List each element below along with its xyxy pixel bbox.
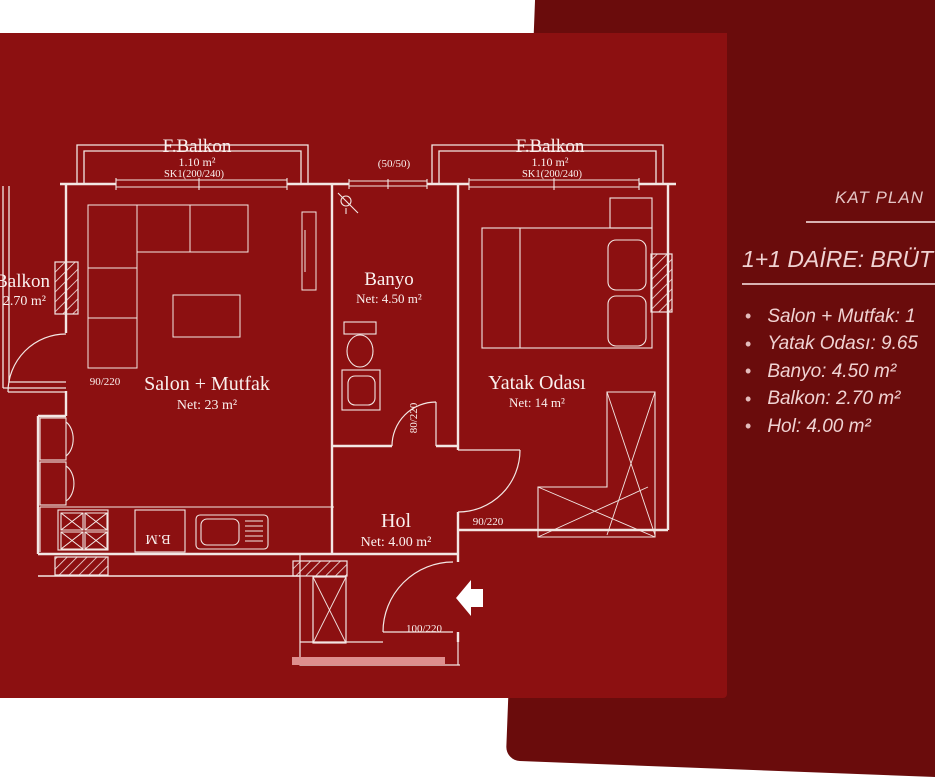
entrance-arrow-icon xyxy=(456,580,483,616)
room-label: F.Balkon xyxy=(516,136,585,157)
subheading-underline xyxy=(742,283,935,285)
bullet-icon: • xyxy=(745,306,751,327)
dim-label: (50/50) xyxy=(378,158,411,170)
room-area-text: Yatak Odası: 9.65 xyxy=(767,333,918,355)
room-area: Net: 23 m² xyxy=(177,398,237,413)
room-area: Net: 14 m² xyxy=(509,395,565,410)
appliance-label: B.M xyxy=(145,531,171,546)
room-label: F.Balkon xyxy=(163,136,232,157)
room-label: Banyo xyxy=(364,269,414,290)
room-label: Salon + Mutfak xyxy=(144,373,270,395)
panel-heading: KAT PLAN xyxy=(835,188,935,214)
window-tag: SK1(200/240) xyxy=(522,169,583,180)
room-area-text: Hol: 4.00 m² xyxy=(767,416,870,438)
dim-label: 90/220 xyxy=(473,516,504,528)
list-item: •Hol: 4.00 m² xyxy=(745,413,935,441)
list-item: •Banyo: 4.50 m² xyxy=(745,358,935,386)
dim-label: 90/220 xyxy=(90,376,121,388)
bullet-icon: • xyxy=(745,361,751,382)
list-item: •Yatak Odası: 9.65 xyxy=(745,331,935,359)
panel-subheading: 1+1 DAİRE: BRÜT xyxy=(742,246,935,280)
room-area: 2.70 m² xyxy=(3,294,46,309)
kitchen-units xyxy=(40,418,334,552)
room-area-text: Salon + Mutfak: 1 xyxy=(767,306,915,328)
room-label: Balkon xyxy=(0,271,50,292)
room-area-text: Banyo: 4.50 m² xyxy=(767,361,896,383)
walls xyxy=(38,183,676,642)
info-panel: KAT PLAN 1+1 DAİRE: BRÜT •Salon + Mutfak… xyxy=(725,0,935,735)
porch-accent-bar xyxy=(292,657,445,665)
list-item: •Balkon: 2.70 m² xyxy=(745,386,935,414)
room-area: 1.10 m² xyxy=(532,155,569,169)
room-area-text: Balkon: 2.70 m² xyxy=(767,388,900,410)
room-area: Net: 4.50 m² xyxy=(356,291,422,306)
heading-underline xyxy=(806,221,935,223)
list-item: •Salon + Mutfak: 1 xyxy=(745,303,935,331)
bullet-icon: • xyxy=(745,389,751,410)
dim-label: 100/220 xyxy=(406,623,443,635)
room-area: 1.10 m² xyxy=(179,155,216,169)
salon-furniture xyxy=(88,205,316,368)
room-label: Hol xyxy=(381,510,411,532)
bullet-icon: • xyxy=(745,334,751,355)
dim-label: 80/220 xyxy=(408,402,420,433)
window-tag: SK1(200/240) xyxy=(164,169,225,180)
room-area-list: •Salon + Mutfak: 1 •Yatak Odası: 9.65 •B… xyxy=(745,303,935,441)
bullet-icon: • xyxy=(745,416,751,437)
room-label: Yatak Odası xyxy=(488,372,586,394)
room-area: Net: 4.00 m² xyxy=(361,535,432,550)
